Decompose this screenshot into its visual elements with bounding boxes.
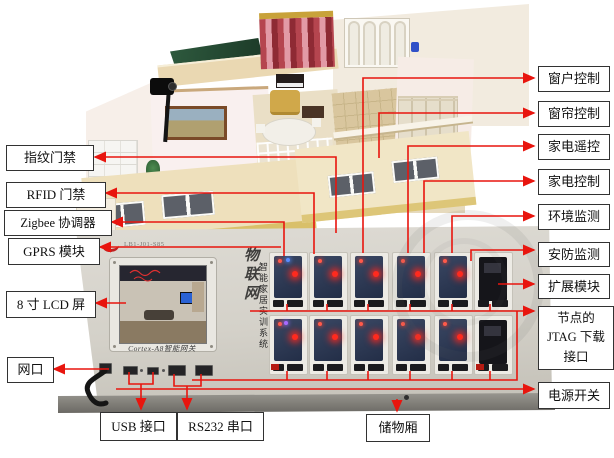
storage-keyhole — [404, 395, 409, 400]
sofa-on-screen — [144, 310, 174, 320]
node-module — [269, 252, 308, 311]
watermark-ring — [420, 238, 508, 326]
callout-curtain-control: 窗帘控制 — [538, 101, 610, 127]
dining-table — [262, 118, 316, 146]
callout-zigbee: Zigbee 协调器 — [4, 210, 112, 236]
callout-lcd: 8 寸 LCD 屏 — [6, 291, 96, 318]
callout-rfid: RFID 门禁 — [6, 182, 106, 208]
picture-frame — [165, 106, 227, 140]
coffee-table — [302, 106, 324, 118]
serial-port-2 — [195, 365, 213, 376]
callout-expansion-module: 扩展模块 — [538, 274, 610, 299]
callout-window-control: 窗户控制 — [538, 66, 610, 92]
callout-appliance-control: 家电控制 — [538, 169, 610, 195]
callout-fingerprint: 指纹门禁 — [6, 145, 94, 171]
callout-appliance-remote: 家电遥控 — [538, 134, 610, 160]
node-module — [350, 315, 389, 375]
mini-usb-port — [147, 367, 159, 375]
wall-device — [411, 42, 419, 52]
callout-security-monitoring: 安防监测 — [538, 242, 610, 267]
usb-port — [123, 366, 138, 375]
node-module — [269, 315, 308, 375]
lcd-screen — [119, 265, 207, 344]
camera-lens — [168, 82, 177, 91]
callout-storage: 储物厢 — [366, 414, 430, 442]
gateway-label: Cortex-A8智能网关 — [112, 343, 212, 354]
callout-jtag: 节点的 JTAG 下载接口 — [538, 306, 614, 370]
ethernet-port — [99, 363, 112, 374]
annotated-figure: LB1-J01-S85 Cortex-A8智能网关 物联网 智能家居实训系统 — [0, 0, 614, 458]
callout-environment-monitoring: 环境监测 — [538, 204, 610, 230]
callout-lan: 网口 — [7, 357, 54, 383]
serial-port-1 — [168, 365, 186, 376]
callout-rs232: RS232 串口 — [177, 412, 264, 441]
chair — [256, 124, 265, 133]
piano — [276, 74, 304, 88]
node-module — [309, 252, 348, 311]
callout-usb: USB 接口 — [100, 412, 177, 441]
table-edge — [58, 393, 555, 413]
node-module — [309, 315, 348, 375]
red-curtains — [259, 11, 335, 70]
node-module — [350, 252, 389, 311]
callout-power-switch: 电源开关 — [538, 382, 610, 409]
chair — [312, 118, 321, 127]
sofa — [270, 90, 300, 115]
curtain-on-screen — [192, 282, 204, 312]
model-code: LB1-J01-S85 — [124, 241, 165, 248]
callout-gprs: GPRS 模块 — [8, 238, 100, 265]
